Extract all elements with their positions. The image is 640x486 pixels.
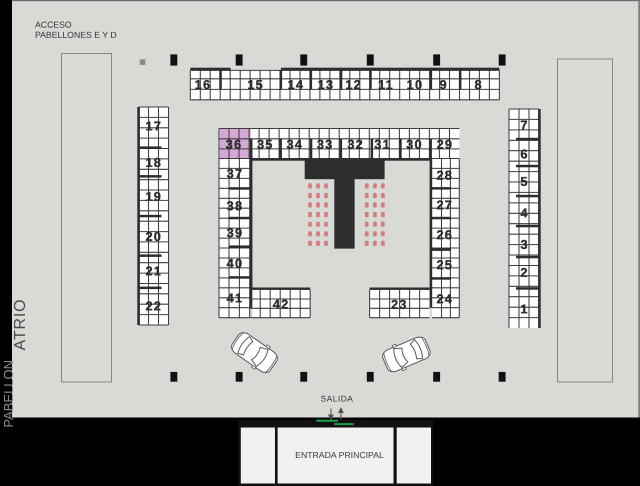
svg-text:ATRIO: ATRIO — [12, 299, 29, 351]
svg-text:11: 11 — [378, 77, 394, 92]
svg-text:19: 19 — [145, 189, 162, 204]
svg-text:24: 24 — [436, 291, 453, 306]
svg-text:17: 17 — [145, 118, 162, 133]
svg-text:3: 3 — [520, 237, 528, 252]
svg-text:25: 25 — [436, 257, 453, 272]
svg-text:42: 42 — [273, 297, 290, 312]
svg-text:32: 32 — [347, 137, 364, 152]
svg-text:6: 6 — [520, 146, 528, 161]
svg-text:23: 23 — [391, 297, 408, 312]
svg-text:30: 30 — [406, 137, 423, 152]
svg-text:28: 28 — [436, 168, 453, 183]
svg-text:31: 31 — [374, 137, 391, 152]
svg-text:41: 41 — [227, 290, 244, 305]
svg-text:PABELLON: PABELLON — [1, 360, 16, 428]
svg-text:27: 27 — [436, 197, 453, 212]
svg-text:10: 10 — [407, 77, 424, 92]
svg-text:35: 35 — [257, 137, 274, 152]
svg-text:40: 40 — [227, 256, 244, 271]
svg-text:38: 38 — [227, 198, 244, 213]
svg-text:7: 7 — [520, 117, 528, 132]
svg-text:5: 5 — [520, 174, 528, 189]
svg-text:26: 26 — [436, 227, 453, 242]
svg-text:16: 16 — [195, 77, 212, 92]
svg-text:29: 29 — [437, 137, 454, 152]
svg-text:4: 4 — [520, 205, 528, 220]
svg-text:37: 37 — [227, 166, 244, 181]
svg-text:ENTRADA PRINCIPAL: ENTRADA PRINCIPAL — [295, 450, 384, 460]
svg-text:33: 33 — [317, 137, 334, 152]
svg-text:36: 36 — [226, 137, 243, 152]
svg-text:39: 39 — [227, 225, 244, 240]
svg-text:SALIDA: SALIDA — [321, 393, 354, 403]
svg-text:21: 21 — [145, 263, 162, 278]
svg-text:13: 13 — [318, 77, 335, 92]
svg-text:14: 14 — [288, 77, 305, 92]
svg-text:9: 9 — [440, 77, 448, 92]
svg-text:2: 2 — [520, 265, 528, 280]
svg-text:8: 8 — [475, 77, 483, 92]
svg-text:15: 15 — [247, 77, 264, 92]
svg-text:1: 1 — [520, 301, 528, 316]
svg-text:34: 34 — [286, 137, 303, 152]
svg-text:12: 12 — [345, 77, 362, 92]
svg-text:18: 18 — [145, 155, 162, 170]
svg-text:22: 22 — [145, 298, 162, 313]
svg-text:20: 20 — [145, 229, 162, 244]
